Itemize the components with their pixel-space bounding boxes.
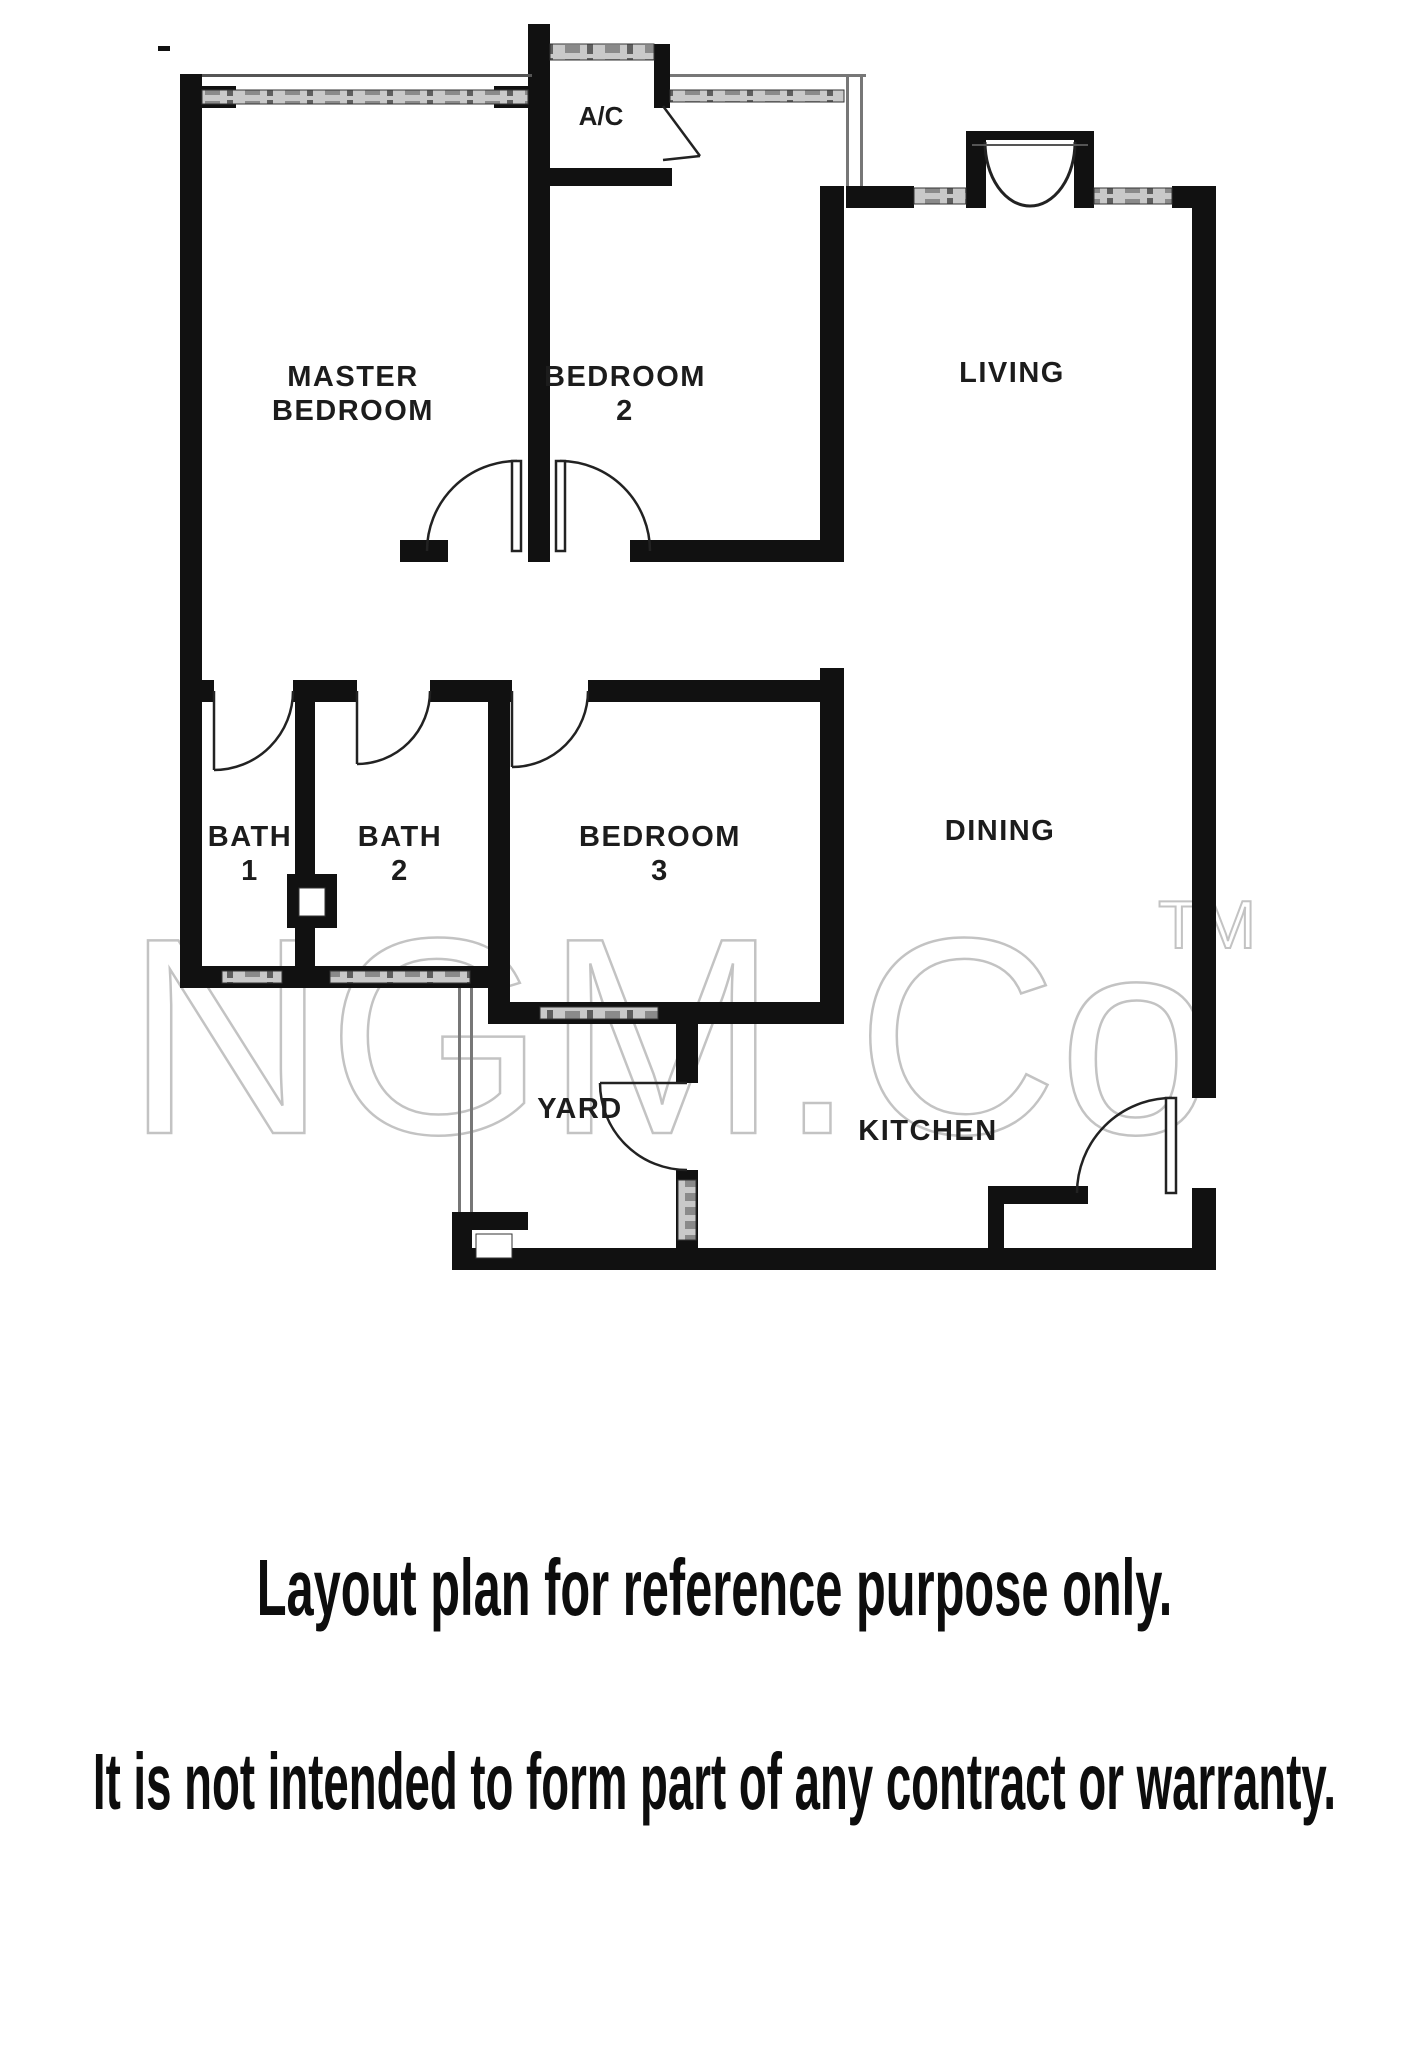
svg-text:3: 3: [651, 855, 669, 887]
bath1-window: [222, 971, 282, 983]
label-bedroom-3: BEDROOM 3: [579, 821, 741, 887]
yard-step-hole: [476, 1234, 512, 1258]
bedroom2-door-leaf: [556, 461, 565, 551]
ac-flap-base: [663, 156, 700, 160]
svg-text:BEDROOM: BEDROOM: [579, 821, 741, 853]
label-master-bedroom: MASTER BEDROOM: [272, 361, 434, 427]
label-bedroom-2: BEDROOM 2: [544, 361, 706, 427]
entrance-door-leaf: [1166, 1098, 1176, 1193]
label-yard: YARD: [537, 1093, 623, 1125]
caption-line-1-text: Layout plan for reference purpose only.: [256, 1548, 1172, 1628]
label-kitchen: KITCHEN: [858, 1115, 997, 1147]
window-line: [202, 74, 532, 77]
duct-shaft: [299, 888, 325, 916]
svg-text:2: 2: [391, 855, 409, 887]
label-living: LIVING: [959, 357, 1065, 389]
bedroom3-window: [540, 1007, 658, 1019]
bay-window: [972, 142, 1088, 206]
svg-text:BATH: BATH: [358, 821, 442, 853]
ac-window: [550, 44, 654, 60]
bedroom2-door-arc: [560, 461, 650, 551]
caption-line-1: Layout plan for reference purpose only.: [0, 1548, 1428, 1628]
master-door-arc: [427, 461, 517, 551]
bath1-door-arc: [214, 691, 293, 770]
master-window: [202, 90, 528, 104]
ac-flap: [663, 106, 700, 156]
label-ac: A/C: [579, 101, 624, 131]
bedroom2-ledge-window: [670, 90, 844, 102]
ledge-line: [670, 74, 866, 77]
svg-text:BEDROOM: BEDROOM: [272, 395, 434, 427]
living-window-right: [1094, 188, 1172, 204]
svg-text:2: 2: [616, 395, 634, 427]
bedroom3-door-arc: [512, 691, 588, 767]
svg-text:1: 1: [241, 855, 259, 887]
svg-text:MASTER: MASTER: [287, 361, 418, 393]
label-dining: DINING: [945, 815, 1056, 847]
bath2-window: [330, 971, 470, 983]
caption-line-2-text: It is not intended to form part of any c…: [92, 1742, 1335, 1822]
yard-vent-window: [678, 1180, 696, 1240]
master-door-leaf: [512, 461, 521, 551]
svg-text:BEDROOM: BEDROOM: [544, 361, 706, 393]
svg-text:BATH: BATH: [208, 821, 292, 853]
living-window-left: [914, 188, 966, 204]
bath2-door-arc: [357, 691, 430, 764]
floor-plan-svg: NGM.Co TM: [0, 0, 1428, 1430]
label-bath-2: BATH 2: [358, 821, 442, 887]
floor-plan: NGM.Co TM: [0, 0, 1428, 1430]
yard-open-edge: [458, 988, 461, 1212]
plan-tick: [158, 46, 170, 51]
caption-line-2: It is not intended to form part of any c…: [0, 1742, 1428, 1822]
label-bath-1: BATH 1: [208, 821, 292, 887]
